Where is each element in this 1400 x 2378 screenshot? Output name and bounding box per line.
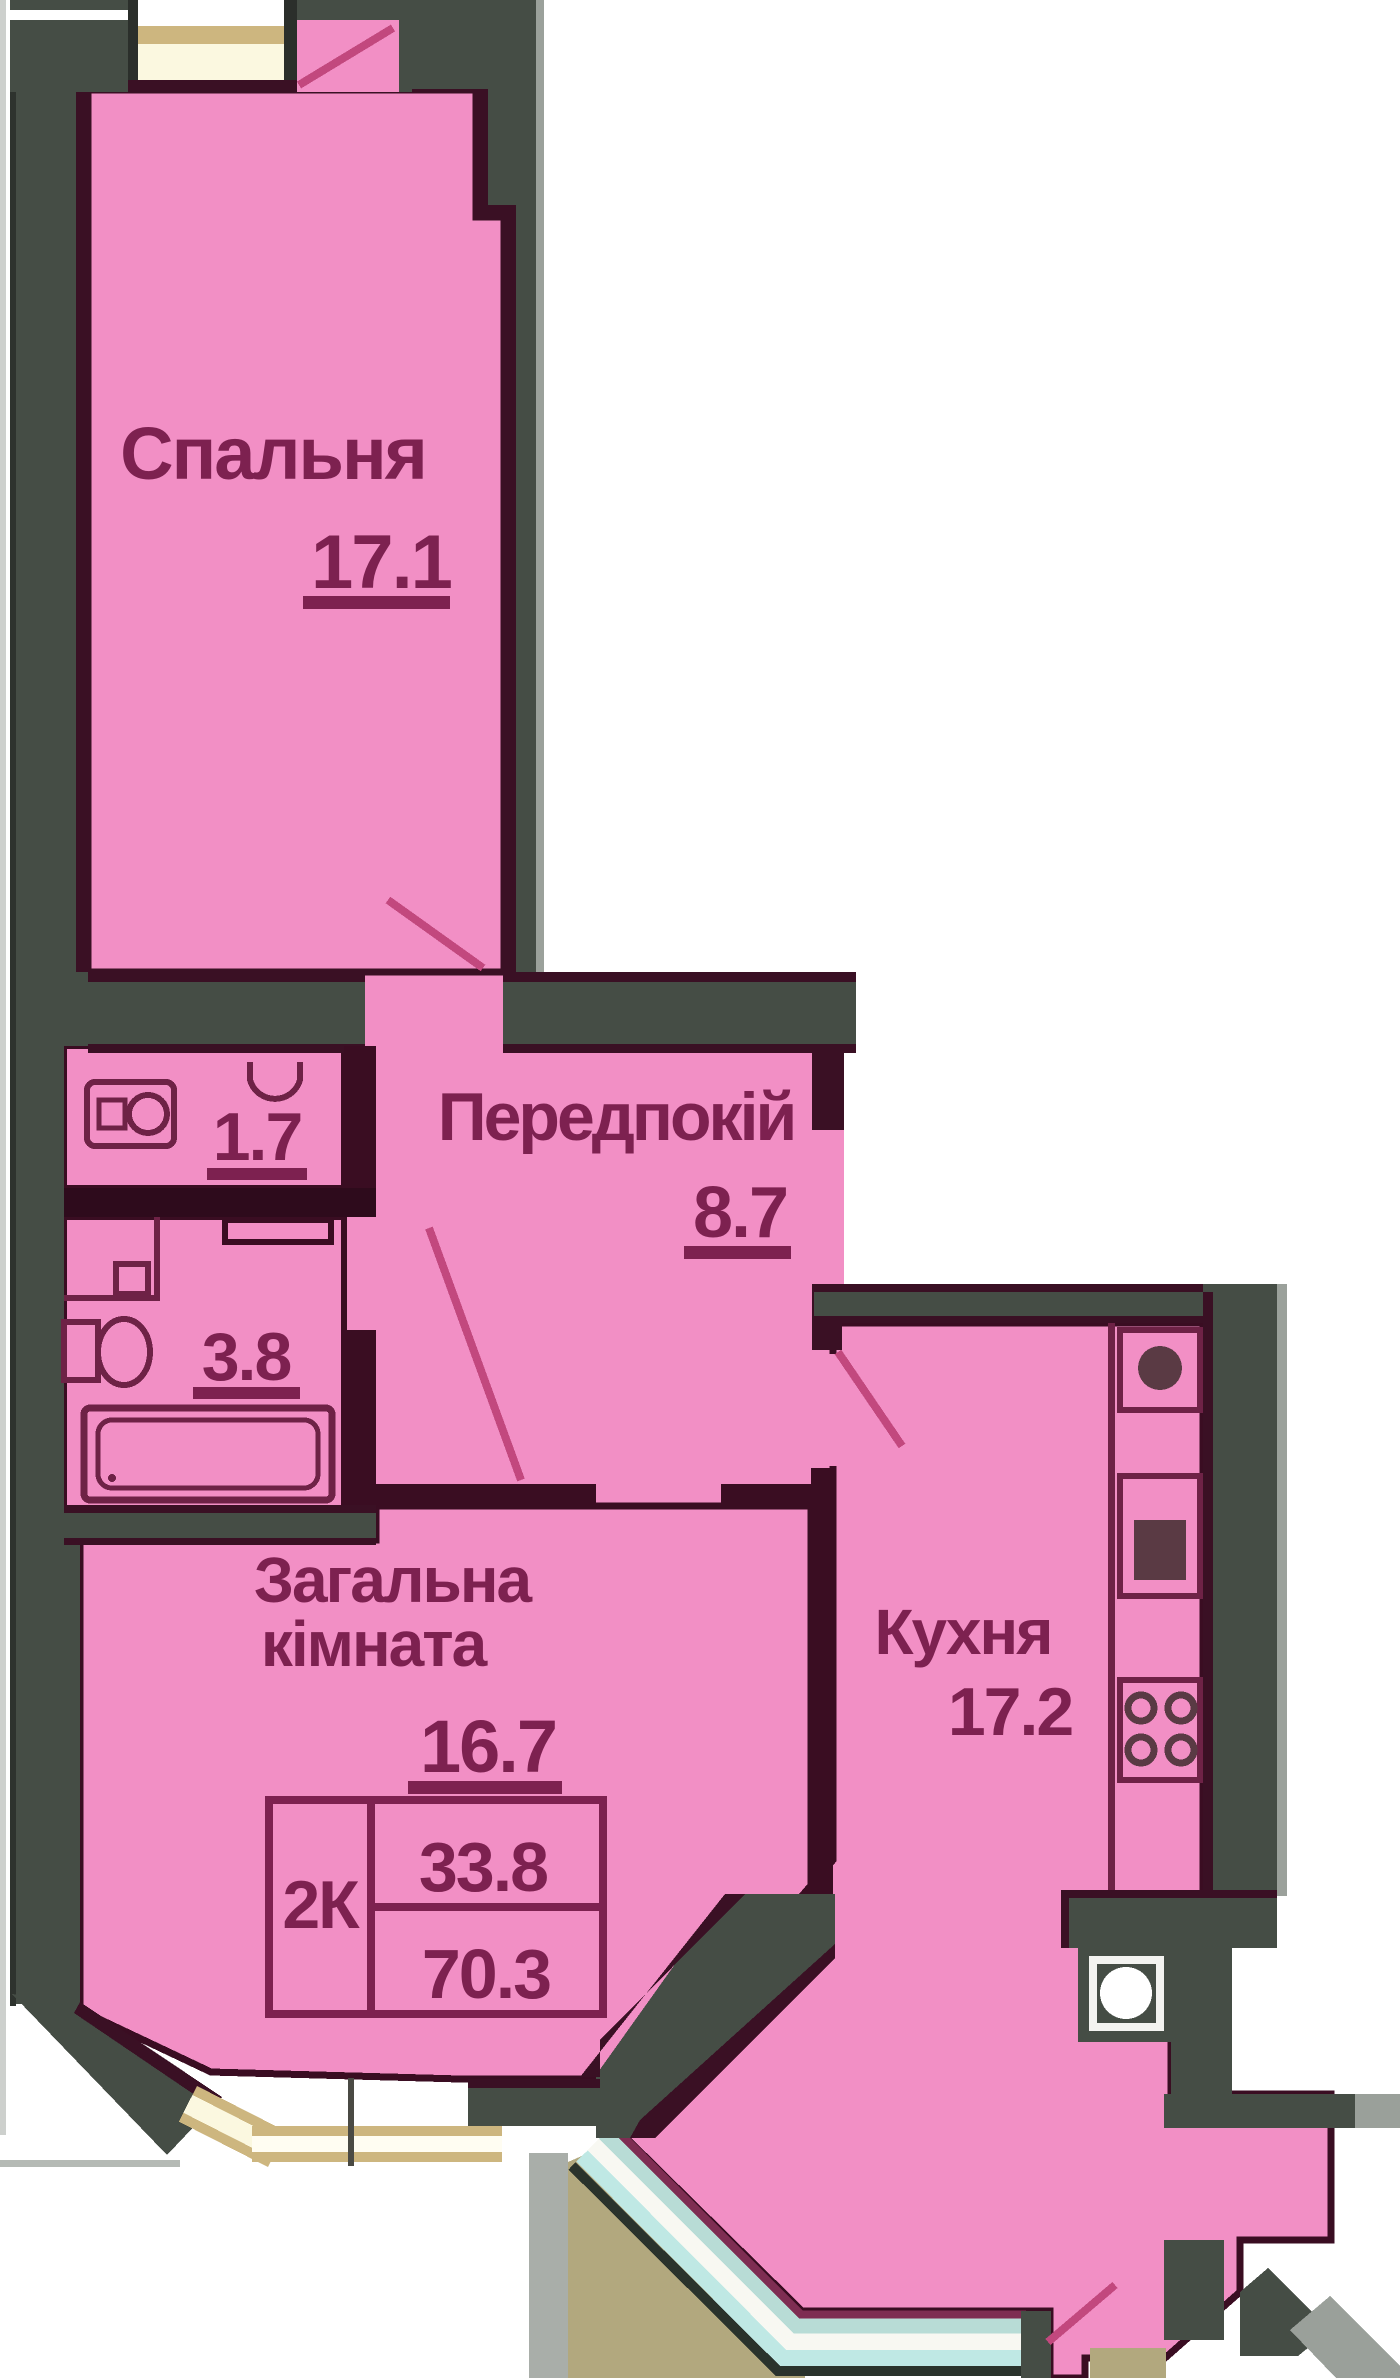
svg-text:Передпокій: Передпокій [438, 1079, 795, 1155]
svg-text:70.3: 70.3 [422, 1935, 550, 2013]
svg-text:1.7: 1.7 [213, 1099, 302, 1175]
svg-text:Спальня: Спальня [120, 412, 426, 495]
svg-text:17.2: 17.2 [948, 1674, 1073, 1750]
svg-text:33.8: 33.8 [419, 1828, 547, 1906]
svg-text:17.1: 17.1 [311, 520, 452, 605]
svg-text:16.7: 16.7 [420, 1705, 556, 1788]
svg-text:2К: 2К [282, 1867, 360, 1943]
svg-text:Загальна: Загальна [254, 1544, 533, 1616]
svg-text:3.8: 3.8 [202, 1319, 291, 1395]
svg-text:Кухня: Кухня [874, 1596, 1051, 1668]
svg-text:8.7: 8.7 [693, 1173, 787, 1253]
svg-text:кімната: кімната [261, 1608, 488, 1680]
